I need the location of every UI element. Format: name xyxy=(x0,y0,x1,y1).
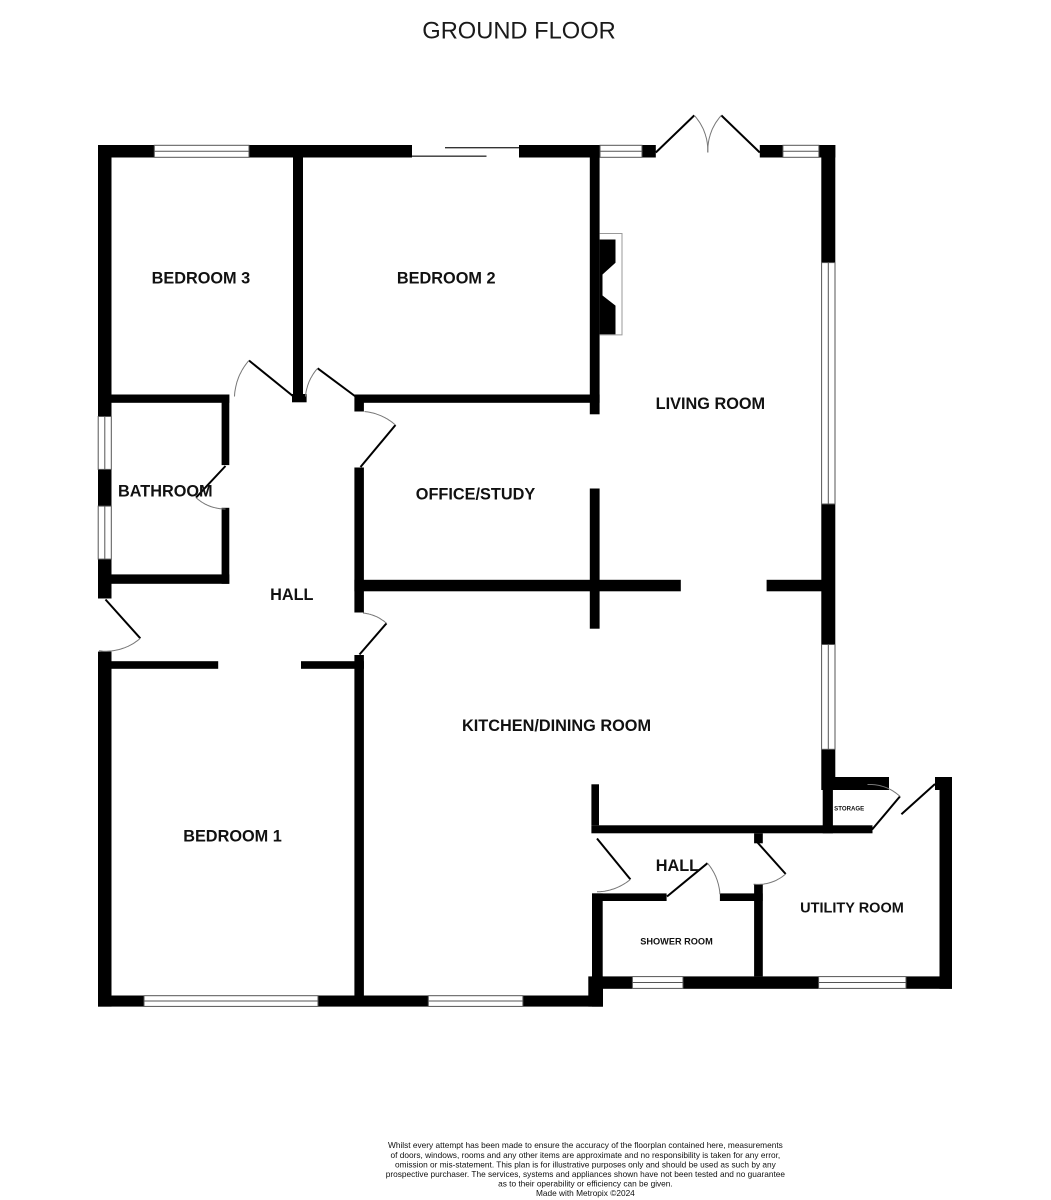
svg-text:HALL: HALL xyxy=(656,857,699,875)
svg-text:prospective purchaser. The ser: prospective purchaser. The services, sys… xyxy=(386,1169,786,1179)
svg-text:BEDROOM 1: BEDROOM 1 xyxy=(183,827,282,845)
svg-text:BATHROOM: BATHROOM xyxy=(118,483,213,501)
svg-text:BEDROOM 2: BEDROOM 2 xyxy=(397,269,496,287)
svg-text:as to their operability or eff: as to their operability or efficiency ca… xyxy=(498,1179,673,1189)
svg-text:UTILITY ROOM: UTILITY ROOM xyxy=(800,900,904,916)
svg-text:of doors, windows, rooms and a: of doors, windows, rooms and any other i… xyxy=(391,1150,781,1160)
svg-text:KITCHEN/DINING ROOM: KITCHEN/DINING ROOM xyxy=(462,717,651,735)
svg-text:OFFICE/STUDY: OFFICE/STUDY xyxy=(416,486,536,504)
svg-text:SHOWER ROOM: SHOWER ROOM xyxy=(640,937,713,947)
svg-text:BEDROOM 3: BEDROOM 3 xyxy=(152,269,251,287)
svg-text:LIVING ROOM: LIVING ROOM xyxy=(656,395,765,413)
svg-text:GROUND FLOOR: GROUND FLOOR xyxy=(422,19,615,45)
svg-text:Whilst every attempt has been: Whilst every attempt has been made to en… xyxy=(388,1140,783,1150)
svg-text:Made with Metropix ©2024: Made with Metropix ©2024 xyxy=(536,1188,635,1198)
svg-text:STORAGE: STORAGE xyxy=(834,805,864,812)
svg-text:omission or mis-statement. Thi: omission or mis-statement. This plan is … xyxy=(395,1159,777,1169)
svg-text:HALL: HALL xyxy=(270,586,313,604)
